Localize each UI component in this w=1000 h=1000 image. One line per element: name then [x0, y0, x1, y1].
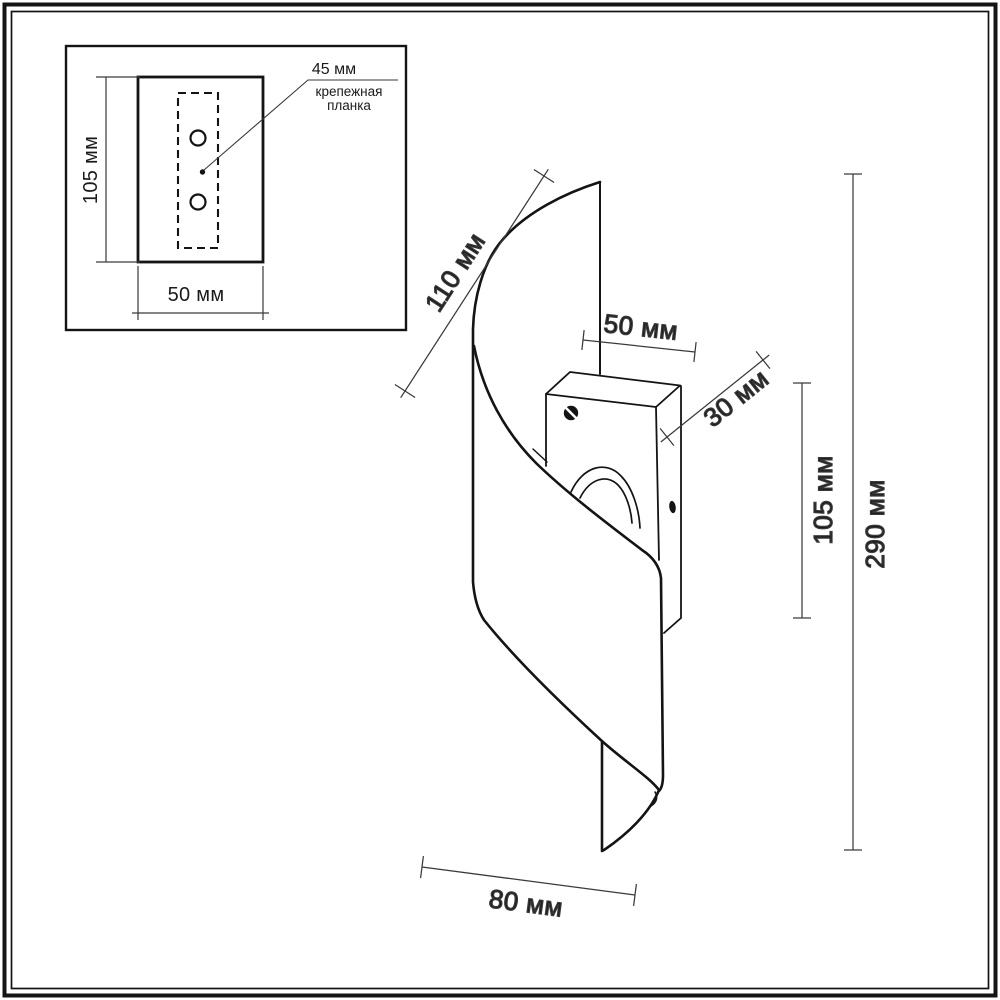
dim-shade-edge-label: 110 мм [419, 227, 492, 317]
inset-plate-height-label: 105 мм [80, 136, 102, 204]
inner-border [12, 12, 989, 989]
technical-drawing: 45 мм крепежная планка 105 мм 50 мм [0, 0, 1000, 1000]
inset-height-dimension [96, 77, 140, 262]
lamp-drawing [473, 182, 681, 851]
inset-caption-line1: крепежная [316, 84, 383, 99]
dim-shade-edge [395, 169, 554, 397]
box-top-front-edges [546, 386, 680, 408]
lamp-socket-arcs [571, 467, 640, 528]
dim-backplate-depth-label: 30 мм [698, 363, 775, 433]
box-top-back-edges [546, 372, 680, 394]
screw-hole-top [191, 131, 206, 146]
mounting-plate-inset: 45 мм крепежная планка 105 мм 50 мм [66, 46, 406, 330]
box-front-right-edge [656, 407, 659, 560]
side-hole [668, 500, 676, 513]
dim-backplate-height-label: 105 мм [808, 455, 838, 544]
page-frame [5, 5, 996, 996]
outer-border [5, 5, 996, 996]
drawing-page: 45 мм крепежная планка 105 мм 50 мм [0, 0, 1000, 1000]
dimensions: 110 мм 50 мм 30 мм 105 мм 290 мм [395, 169, 890, 922]
dim-total-height-label: 290 мм [860, 479, 890, 568]
dim-bottom-width-label: 80 мм [487, 883, 565, 922]
inset-hole-spacing-label: 45 мм [312, 61, 356, 78]
inset-caption-line2: планка [327, 98, 371, 113]
plate-outline [138, 77, 263, 262]
dim-backplate-width-label: 50 мм [602, 308, 679, 346]
inset-plate-width-label: 50 мм [168, 284, 225, 306]
screw-icon [564, 406, 578, 420]
mounting-strip-dashed-outline [178, 93, 218, 248]
wrap-back-sliver [533, 449, 547, 462]
screw-hole-bottom [191, 195, 206, 210]
